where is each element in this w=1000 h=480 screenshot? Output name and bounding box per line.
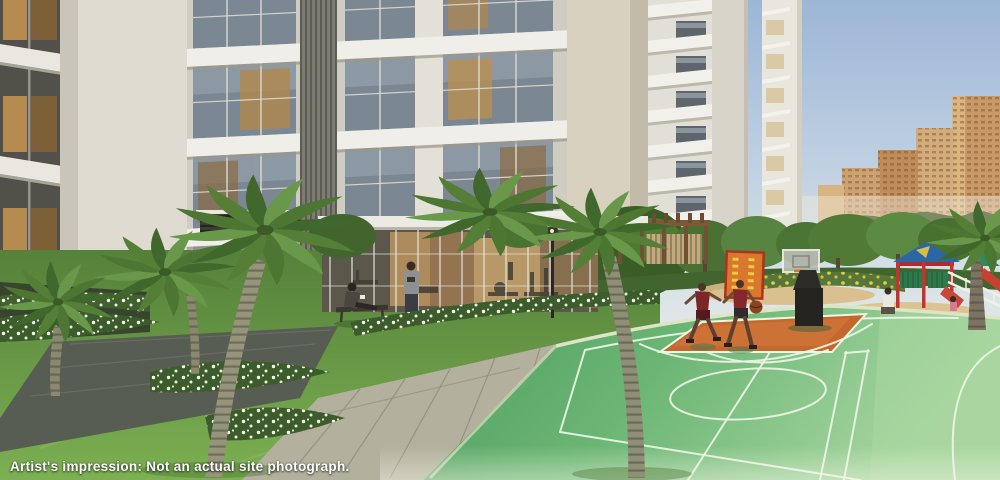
scene-canvas	[0, 0, 1000, 480]
caption: Artist's impression: Not an actual site …	[10, 459, 350, 474]
basketball	[750, 301, 763, 314]
rendering-image: Artist's impression: Not an actual site …	[0, 0, 1000, 480]
mid-tower-right	[762, 0, 802, 240]
